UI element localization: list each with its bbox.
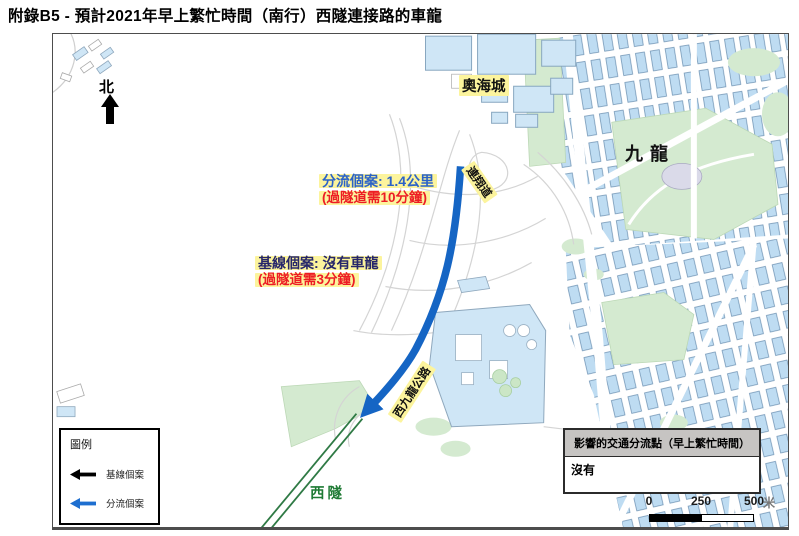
impact-table-header: 影響的交通分流點（早上繁忙時間） bbox=[565, 430, 759, 457]
baseline-arrow-icon bbox=[70, 469, 96, 480]
impact-table-body: 沒有 bbox=[565, 457, 759, 492]
page: 附錄B5 - 預計2021年早上繁忙時間（南行）西隧連接路的車龍 bbox=[0, 0, 799, 536]
diversion-annotation: 分流個案: 1.4公里 (過隧道需10分鐘) bbox=[319, 174, 437, 207]
legend-box: 圖例 基線個案 分流個案 bbox=[59, 428, 160, 525]
scale-tick-500: 500 bbox=[744, 494, 764, 508]
legend-label-baseline: 基線個案 bbox=[106, 467, 144, 481]
legend-label-diversion: 分流個案 bbox=[106, 496, 144, 510]
label-olympian-city: 奧海城 bbox=[459, 75, 509, 96]
diversion-arrow-icon bbox=[70, 498, 96, 509]
baseline-time-text: (過隧道需3分鐘) bbox=[255, 273, 359, 287]
scale-bar-rule bbox=[649, 514, 754, 522]
legend-item-diversion: 分流個案 bbox=[70, 496, 158, 510]
baseline-case-text: 基線個案: 沒有車龍 bbox=[255, 256, 382, 270]
north-arrow-icon bbox=[99, 94, 121, 126]
scale-bar-fill bbox=[650, 515, 702, 521]
diversion-case-text: 分流個案: 1.4公里 bbox=[319, 174, 437, 188]
label-western-tunnel: 西隧 bbox=[310, 482, 345, 503]
label-kowloon: 九龍 bbox=[625, 140, 675, 166]
map-frame: 北 奧海城 九龍 連翔道 西九龍公路 西隧 分流個案: 1.4公里 (過隧道需1… bbox=[52, 33, 789, 530]
page-title: 附錄B5 - 預計2021年早上繁忙時間（南行）西隧連接路的車龍 bbox=[8, 4, 442, 26]
scale-bar: 0 250 500 米 bbox=[639, 494, 769, 528]
legend-title: 圖例 bbox=[70, 436, 158, 452]
scale-tick-250: 250 bbox=[691, 494, 711, 508]
legend-item-baseline: 基線個案 bbox=[70, 467, 158, 481]
impact-table: 影響的交通分流點（早上繁忙時間） 沒有 bbox=[563, 428, 761, 494]
scale-tick-0: 0 bbox=[646, 494, 653, 508]
diversion-time-text: (過隧道需10分鐘) bbox=[319, 191, 430, 205]
baseline-annotation: 基線個案: 沒有車龍 (過隧道需3分鐘) bbox=[255, 256, 382, 289]
scale-unit: 米 bbox=[763, 494, 775, 511]
